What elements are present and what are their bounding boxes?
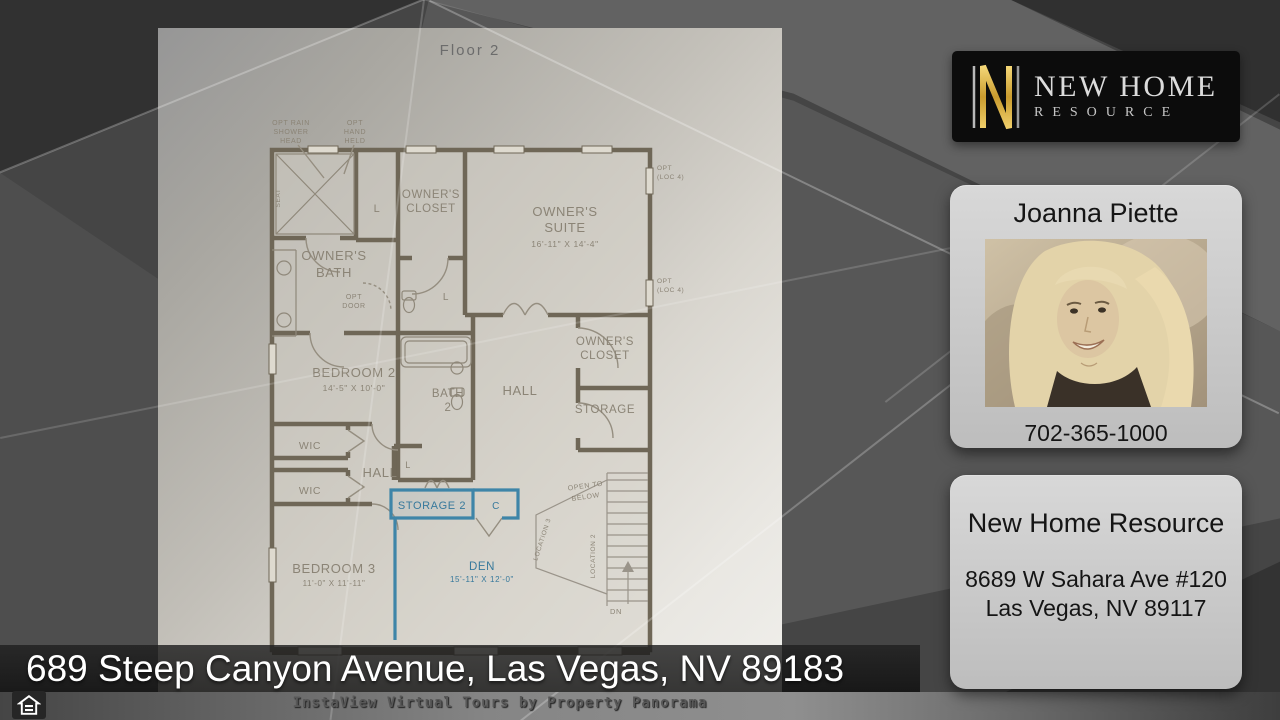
opt-door-label: OPT xyxy=(346,294,362,301)
opt-rain-label: HEAD xyxy=(280,138,302,145)
opt-rain-label: OPT RAIN xyxy=(272,120,310,127)
agent-photo xyxy=(985,239,1207,407)
dn-label: DN xyxy=(610,607,622,616)
owners-closet-label: OWNER'S xyxy=(402,189,460,201)
owners-suite-label: OWNER'S xyxy=(532,204,597,219)
opt-loc4-label: OPT xyxy=(657,278,672,285)
storage2-label: STORAGE 2 xyxy=(398,500,466,512)
linen-label: L xyxy=(374,203,381,215)
linen-label: L xyxy=(443,292,449,303)
office-card: New Home Resource 8689 W Sahara Ave #120… xyxy=(950,475,1242,689)
owners-closet-label: CLOSET xyxy=(406,203,456,215)
wic-label: WIC xyxy=(299,485,321,497)
opt-hand-label: HELD xyxy=(344,138,365,145)
den-label: DEN xyxy=(469,561,495,573)
den-dims: 15'-11" X 12'-0" xyxy=(450,575,514,584)
hall-label: HALL xyxy=(363,465,398,480)
opt-hand-label: HAND xyxy=(344,129,366,136)
bath2-label: BATH xyxy=(432,388,464,400)
opt-rain-label: SHOWER xyxy=(273,129,308,136)
property-address: 689 Steep Canyon Avenue, Las Vegas, NV 8… xyxy=(0,648,844,690)
opt-loc4-label: (LOC 4) xyxy=(657,287,684,294)
location2-label: LOCATION 2 xyxy=(590,534,597,578)
plan-title: Floor 2 xyxy=(440,42,501,59)
virtual-tour-slide: Floor 2 OPT RAIN SHOWER HEAD OPT HAND HE… xyxy=(0,0,1280,720)
logo-line1: NEW HOME xyxy=(1034,72,1218,102)
owners-suite-dims: 16'-11" X 14'-4" xyxy=(531,239,598,249)
opt-hand-label: OPT xyxy=(347,120,363,127)
bedroom2-dims: 14'-5" X 10'-0" xyxy=(323,383,386,393)
agent-phone: 702-365-1000 xyxy=(950,420,1242,447)
new-home-resource-logo: NEW HOME RESOURCE xyxy=(952,51,1240,142)
opt-loc4-label: (LOC 4) xyxy=(657,174,684,181)
logo-text: NEW HOME RESOURCE xyxy=(1034,72,1218,121)
bedroom3-label: BEDROOM 3 xyxy=(292,561,375,576)
opt-door-label: DOOR xyxy=(342,303,365,310)
logo-line2: RESOURCE xyxy=(1034,105,1218,121)
hall-label: HALL xyxy=(503,383,538,398)
owners-bath-label: BATH xyxy=(316,265,352,280)
linen-label: L xyxy=(405,460,411,470)
bedroom3-dims: 11'-0" X 11'-11" xyxy=(303,579,366,588)
owners-bath-label: OWNER'S xyxy=(301,248,366,263)
office-address: 8689 W Sahara Ave #120 Las Vegas, NV 891… xyxy=(950,565,1242,623)
opt-loc4-label: OPT xyxy=(657,165,672,172)
property-address-bar: 689 Steep Canyon Avenue, Las Vegas, NV 8… xyxy=(0,645,920,692)
office-address-line1: 8689 W Sahara Ave #120 xyxy=(950,565,1242,594)
agent-name: Joanna Piette xyxy=(950,186,1242,229)
agent-card: Joanna Piette 702-365-1000 xyxy=(950,185,1242,448)
logo-n-monogram-icon xyxy=(970,62,1022,132)
closet-c-label: C xyxy=(492,501,500,512)
owners-suite-label: SUITE xyxy=(544,220,585,235)
owners-closet2-label: CLOSET xyxy=(580,350,630,362)
seat-label: SEAT xyxy=(275,189,282,208)
opt-loc-labels: OPT (LOC 4) OPT (LOC 4) xyxy=(657,165,684,294)
wic-label: WIC xyxy=(299,440,321,452)
office-name: New Home Resource xyxy=(950,476,1242,539)
office-address-line2: Las Vegas, NV 89117 xyxy=(950,594,1242,623)
branding-footer: InstaView Virtual Tours by Property Pano… xyxy=(0,695,1000,711)
bath2-label: 2 xyxy=(445,402,452,414)
owners-closet2-label: OWNER'S xyxy=(576,336,634,348)
storage-label: STORAGE xyxy=(575,404,635,416)
